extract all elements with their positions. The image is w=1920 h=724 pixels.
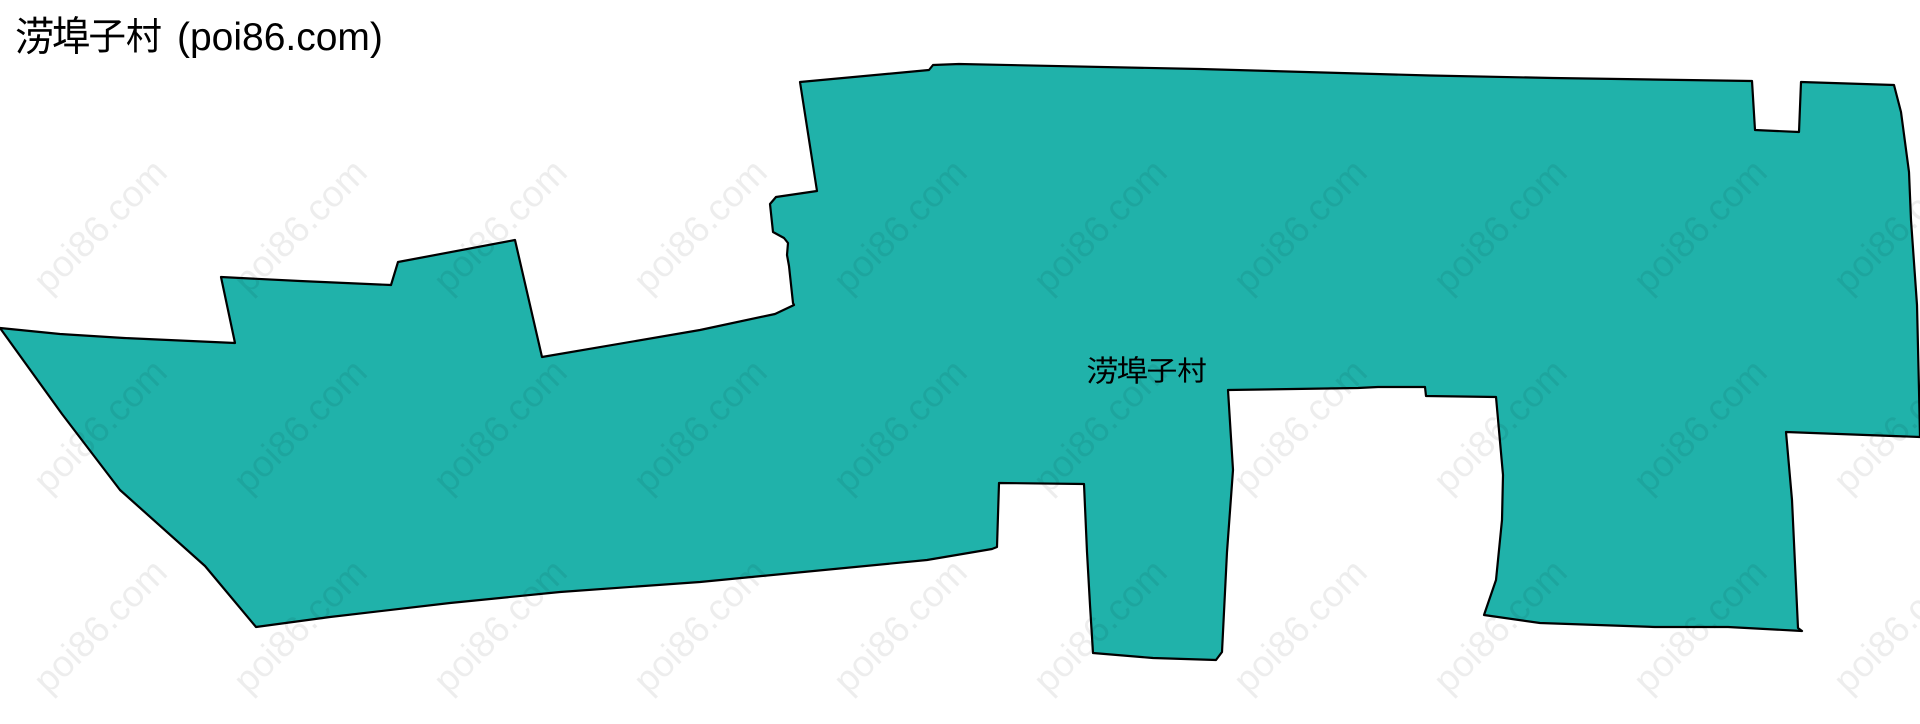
svg-text:(poi86.com): (poi86.com) xyxy=(177,16,383,59)
